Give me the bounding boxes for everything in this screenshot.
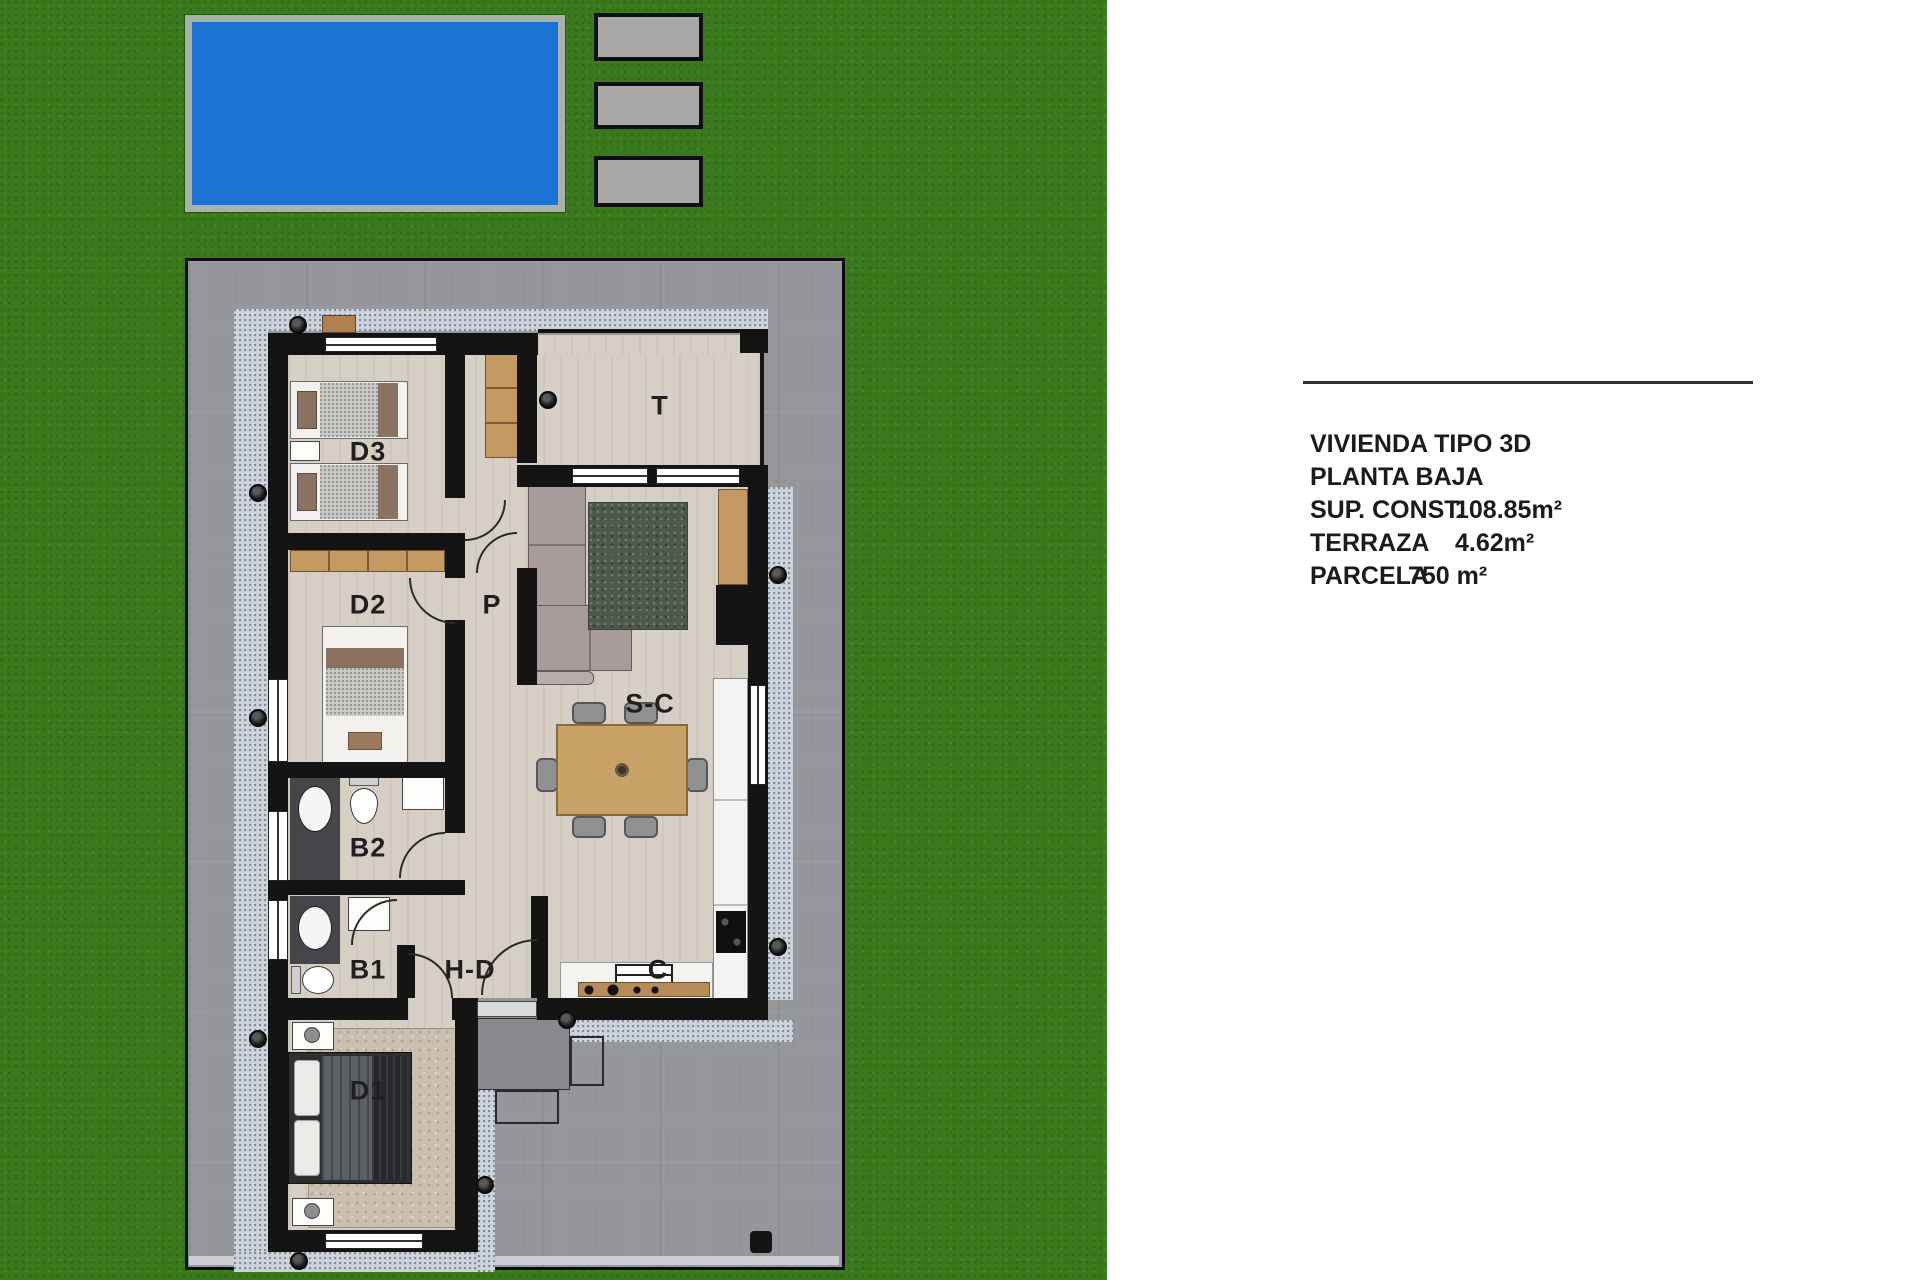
room-label-b2: B2 (350, 833, 387, 864)
info-value: 750 m² (1408, 560, 1487, 593)
door-arc (352, 900, 397, 945)
garden-light (249, 1030, 267, 1048)
door-arcs (0, 0, 1920, 1280)
room-label-d2: D2 (350, 590, 387, 621)
door-arc (410, 578, 455, 623)
door-arc (477, 533, 517, 573)
info-divider (1303, 381, 1753, 384)
garden-light (249, 709, 267, 727)
garden-light (539, 391, 557, 409)
garden-light (249, 484, 267, 502)
room-label-c: C (648, 955, 669, 986)
room-label-sc: S-C (625, 689, 675, 720)
info-line: SUP. CONST. 108.85m² (1310, 494, 1770, 527)
garden-light (290, 1252, 308, 1270)
door-arc (465, 500, 505, 540)
room-label-p: P (482, 590, 501, 621)
door-arc (400, 833, 445, 878)
info-label: PLANTA BAJA (1310, 463, 1484, 491)
info-label: TERRAZA (1310, 529, 1429, 557)
room-label-hd: H-D (445, 955, 496, 986)
floor-plan-page: D3 D2 P T S-C B2 B1 H-D C D1 VIVIENDA TI… (0, 0, 1920, 1280)
room-label-b1: B1 (350, 955, 387, 986)
info-value: 4.62m² (1455, 527, 1534, 560)
room-label-d1: D1 (350, 1076, 387, 1107)
garden-light (769, 566, 787, 584)
info-line: TERRAZA 4.62m² (1310, 527, 1770, 560)
info-label: VIVIENDA TIPO 3D (1310, 430, 1531, 458)
room-label-d3: D3 (350, 437, 387, 468)
garden-light (769, 938, 787, 956)
garden-light (558, 1011, 576, 1029)
room-label-t: T (651, 391, 669, 422)
info-panel: VIVIENDA TIPO 3D PLANTA BAJA SUP. CONST.… (1310, 428, 1770, 593)
info-line: VIVIENDA TIPO 3D (1310, 428, 1770, 461)
info-line: PLANTA BAJA (1310, 461, 1770, 494)
info-label: SUP. CONST. (1310, 496, 1464, 524)
drain (750, 1231, 772, 1253)
garden-light (289, 316, 307, 334)
garden-light (476, 1176, 494, 1194)
info-value: 108.85m² (1455, 494, 1562, 527)
info-line: PARCELA 750 m² (1310, 560, 1770, 593)
